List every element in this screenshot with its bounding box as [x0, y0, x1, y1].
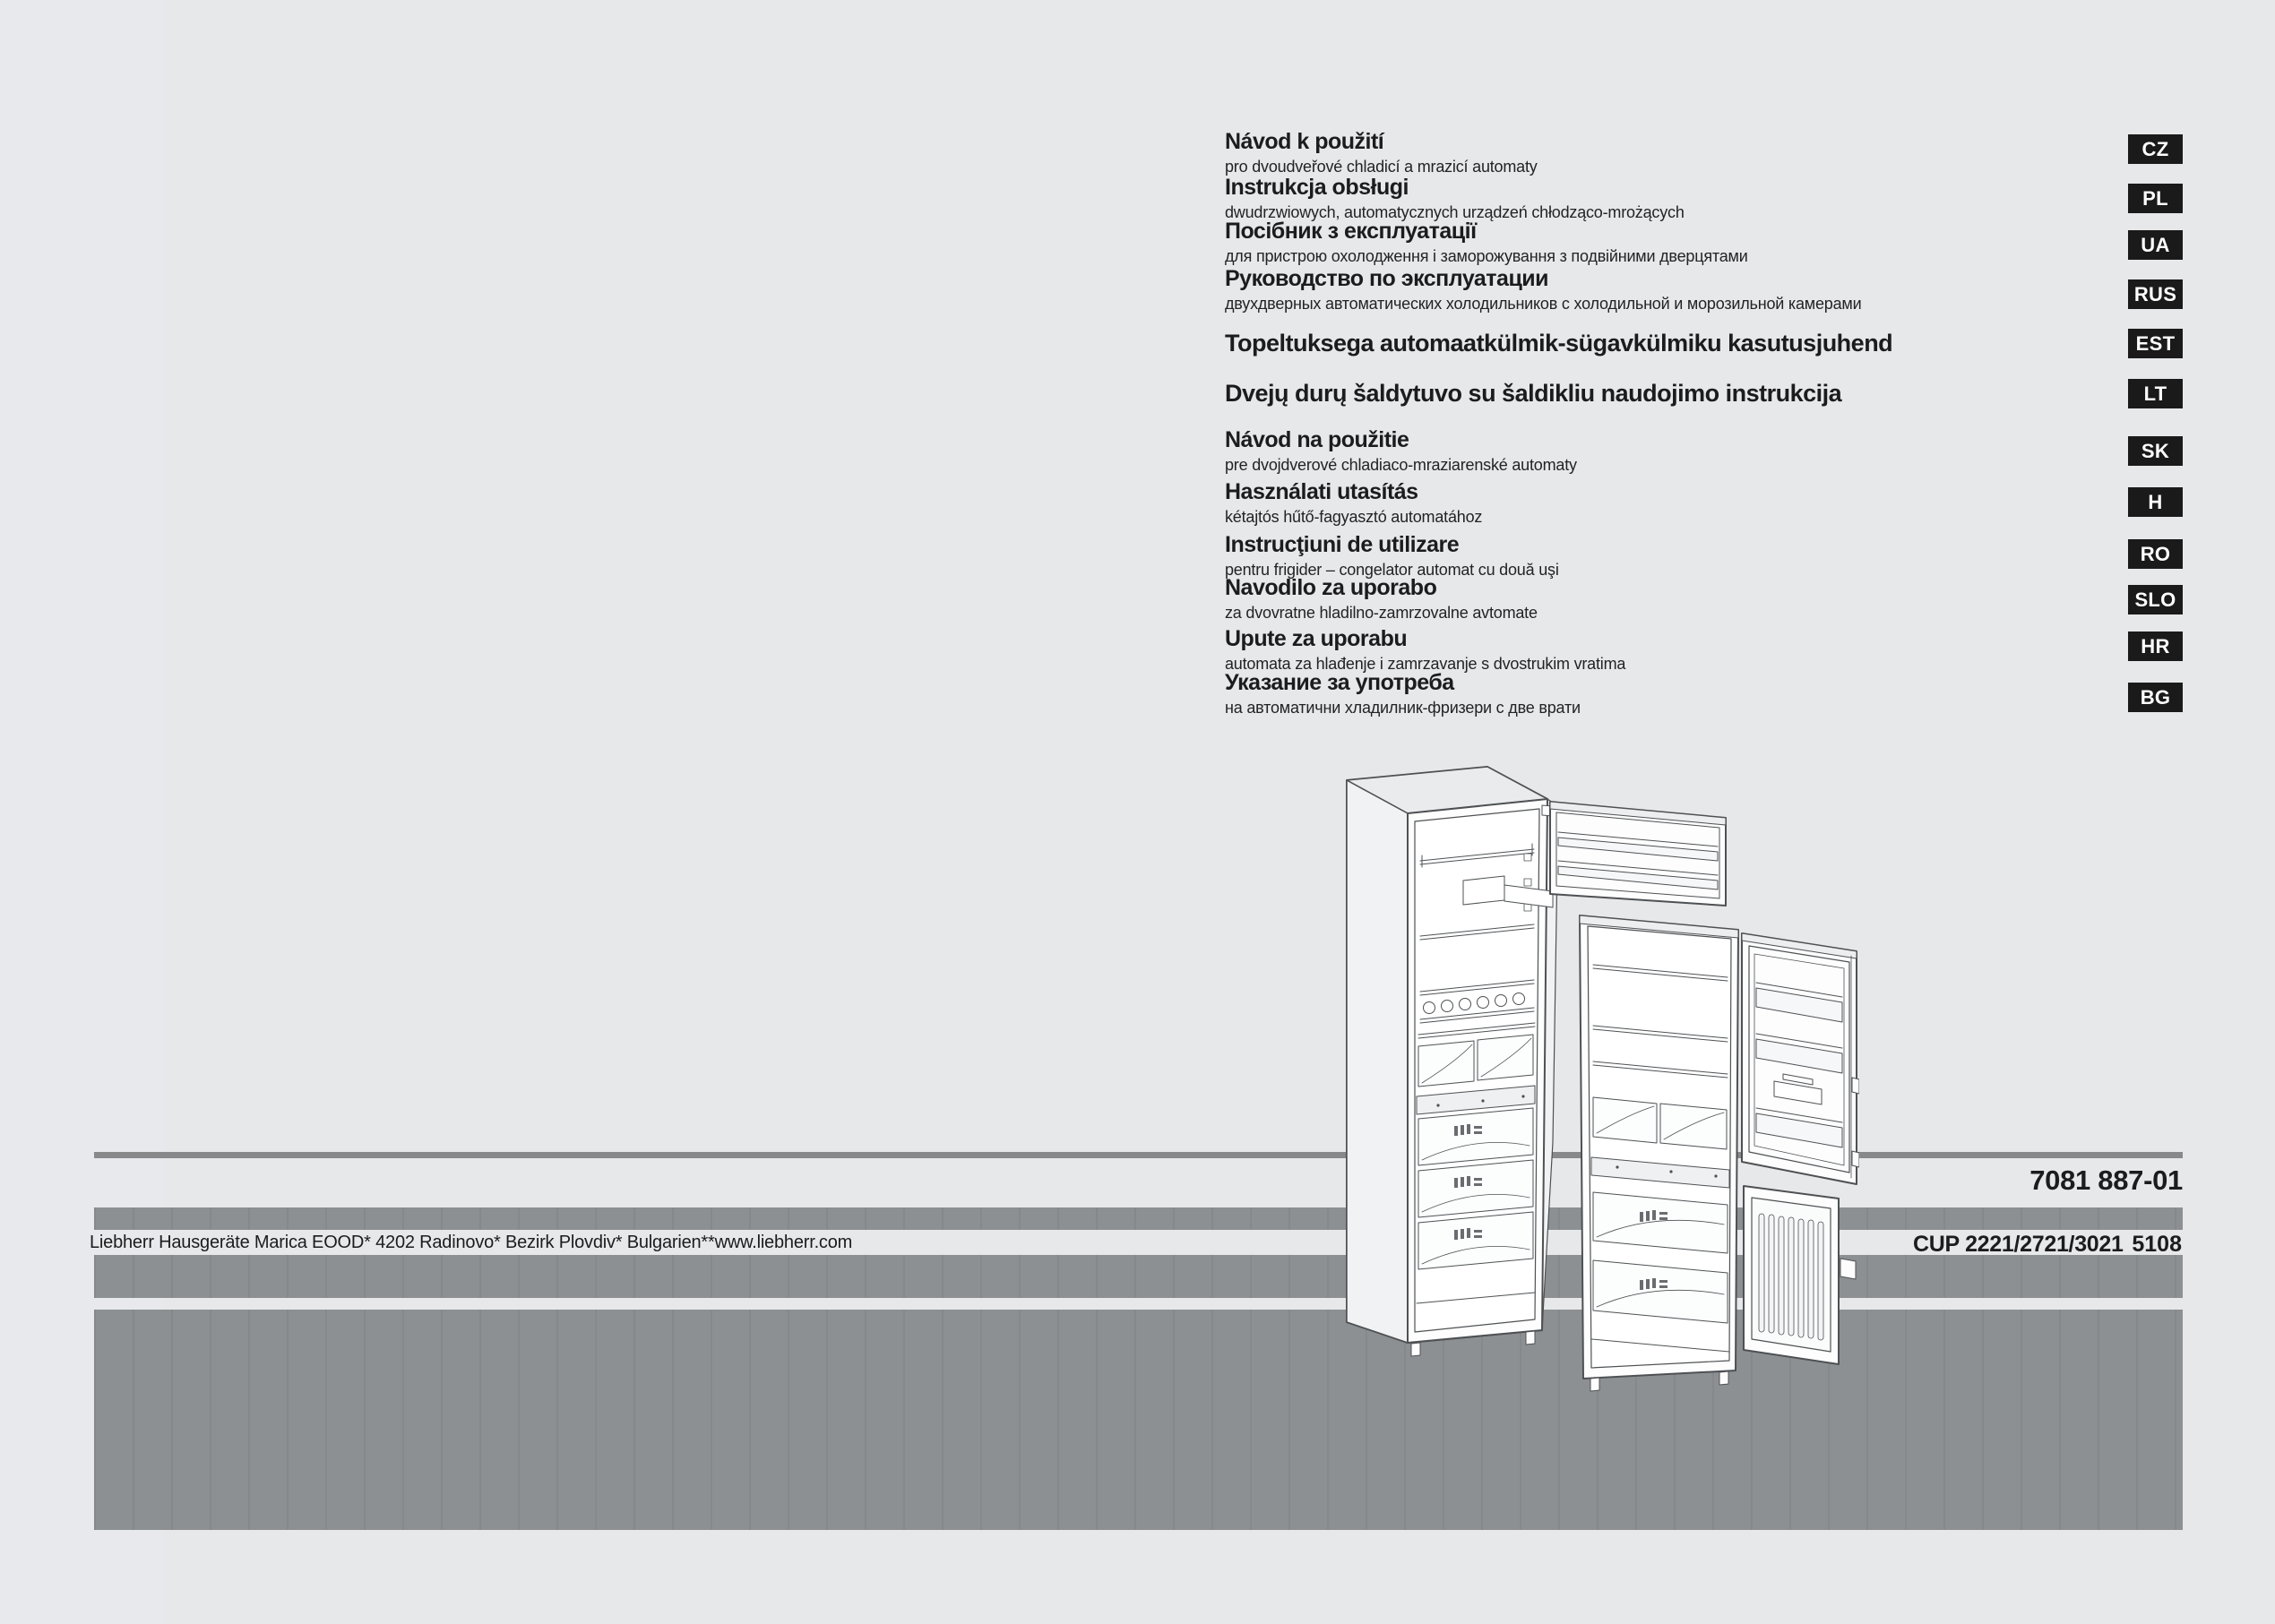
language-title: Használati utasítás [1225, 480, 1482, 503]
language-row-hr: Upute za uporabu automata za hlađenje i … [1225, 627, 1625, 674]
language-row-rus: Руководство по эксплуатации двухдверных … [1225, 267, 1861, 314]
language-title: Руководство по эксплуатации [1225, 267, 1861, 290]
language-badge-h: H [2128, 487, 2183, 517]
language-subtitle: kétajtós hűtő-fagyasztó automatához [1225, 508, 1482, 527]
language-subtitle: za dvovratne hladilno-zamrzovalne avtoma… [1225, 604, 1538, 623]
language-badge-pl: PL [2128, 184, 2183, 213]
freezer-drawers-back [1418, 1108, 1533, 1269]
language-row-ro: Instrucţiuni de utilizare pentru frigide… [1225, 533, 1559, 580]
language-subtitle: для пристрою охолодження і заморожування… [1225, 247, 1748, 266]
language-badge-est: EST [2128, 329, 2183, 358]
language-row-lt: Dvejų durų šaldytuvo su šaldikliu naudoj… [1225, 381, 1841, 406]
language-title: Návod k použití [1225, 130, 1538, 153]
language-row-est: Topeltuksega automaatkülmik-sügavkülmiku… [1225, 331, 1892, 356]
language-title: Upute za uporabu [1225, 627, 1625, 650]
divider-bar-mid [94, 1207, 2183, 1230]
language-badge-lt: LT [2128, 379, 2183, 408]
service-code: 5108 [2132, 1232, 2182, 1258]
doc-number: 7081 887-01 [2029, 1164, 2183, 1197]
language-title: Navodilo za uporabo [1225, 576, 1538, 599]
language-subtitle: pro dvoudveřové chladicí a mrazicí autom… [1225, 158, 1538, 176]
language-badge-cz: CZ [2128, 134, 2183, 164]
language-badge-rus: RUS [2128, 279, 2183, 309]
language-subtitle: на автоматични хладилник-фризери с две в… [1225, 699, 1581, 717]
language-subtitle: двухдверных автоматических холодильников… [1225, 295, 1861, 314]
divider-bar-low [94, 1255, 2183, 1298]
back-fridge [1347, 767, 1558, 1356]
front-fridge [1580, 915, 1738, 1391]
fridge-illustration [1322, 766, 1859, 1406]
language-title: Topeltuksega automaatkülmik-sügavkülmiku… [1225, 331, 1892, 356]
language-title: Указание за употреба [1225, 671, 1581, 694]
language-subtitle: pre dvojdverové chladiaco-mraziarenské a… [1225, 456, 1577, 475]
language-row-slo: Navodilo za uporabo za dvovratne hladiln… [1225, 576, 1538, 623]
language-title: Instrucţiuni de utilizare [1225, 533, 1559, 556]
open-fridge-door [1742, 933, 1859, 1184]
language-row-h: Használati utasítás kétajtós hűtő-fagyas… [1225, 480, 1482, 527]
language-title: Посібник з експлуатації [1225, 219, 1748, 243]
language-title: Návod na použitie [1225, 428, 1577, 451]
language-badge-bg: BG [2128, 683, 2183, 712]
model-numbers: CUP 2221/2721/3021 [1913, 1232, 2124, 1258]
open-freezer-door [1744, 1186, 1856, 1364]
manual-cover-page: Návod k použití pro dvoudveřové chladicí… [0, 0, 2275, 1624]
divider-bar-thin [94, 1152, 2183, 1158]
language-badge-sk: SK [2128, 436, 2183, 466]
language-row-pl: Instrukcja obsługi dwudrzwiowych, automa… [1225, 176, 1685, 222]
language-badge-slo: SLO [2128, 585, 2183, 614]
language-badge-hr: HR [2128, 632, 2183, 661]
language-row-sk: Návod na použitie pre dvojdverové chladi… [1225, 428, 1577, 475]
language-row-ua: Посібник з експлуатації для пристрою охо… [1225, 219, 1748, 266]
language-title: Instrukcja obsługi [1225, 176, 1685, 199]
language-badge-ua: UA [2128, 230, 2183, 260]
footer-bar-large [94, 1310, 2183, 1530]
language-badge-ro: RO [2128, 539, 2183, 569]
language-row-cz: Návod k použití pro dvoudveřové chladicí… [1225, 130, 1538, 176]
manufacturer-address: Liebherr Hausgeräte Marica EOOD* 4202 Ra… [90, 1231, 852, 1254]
language-row-bg: Указание за употреба на автоматични хлад… [1225, 671, 1581, 717]
language-title: Dvejų durų šaldytuvo su šaldikliu naudoj… [1225, 381, 1841, 406]
top-compartment-door [1542, 802, 1726, 906]
